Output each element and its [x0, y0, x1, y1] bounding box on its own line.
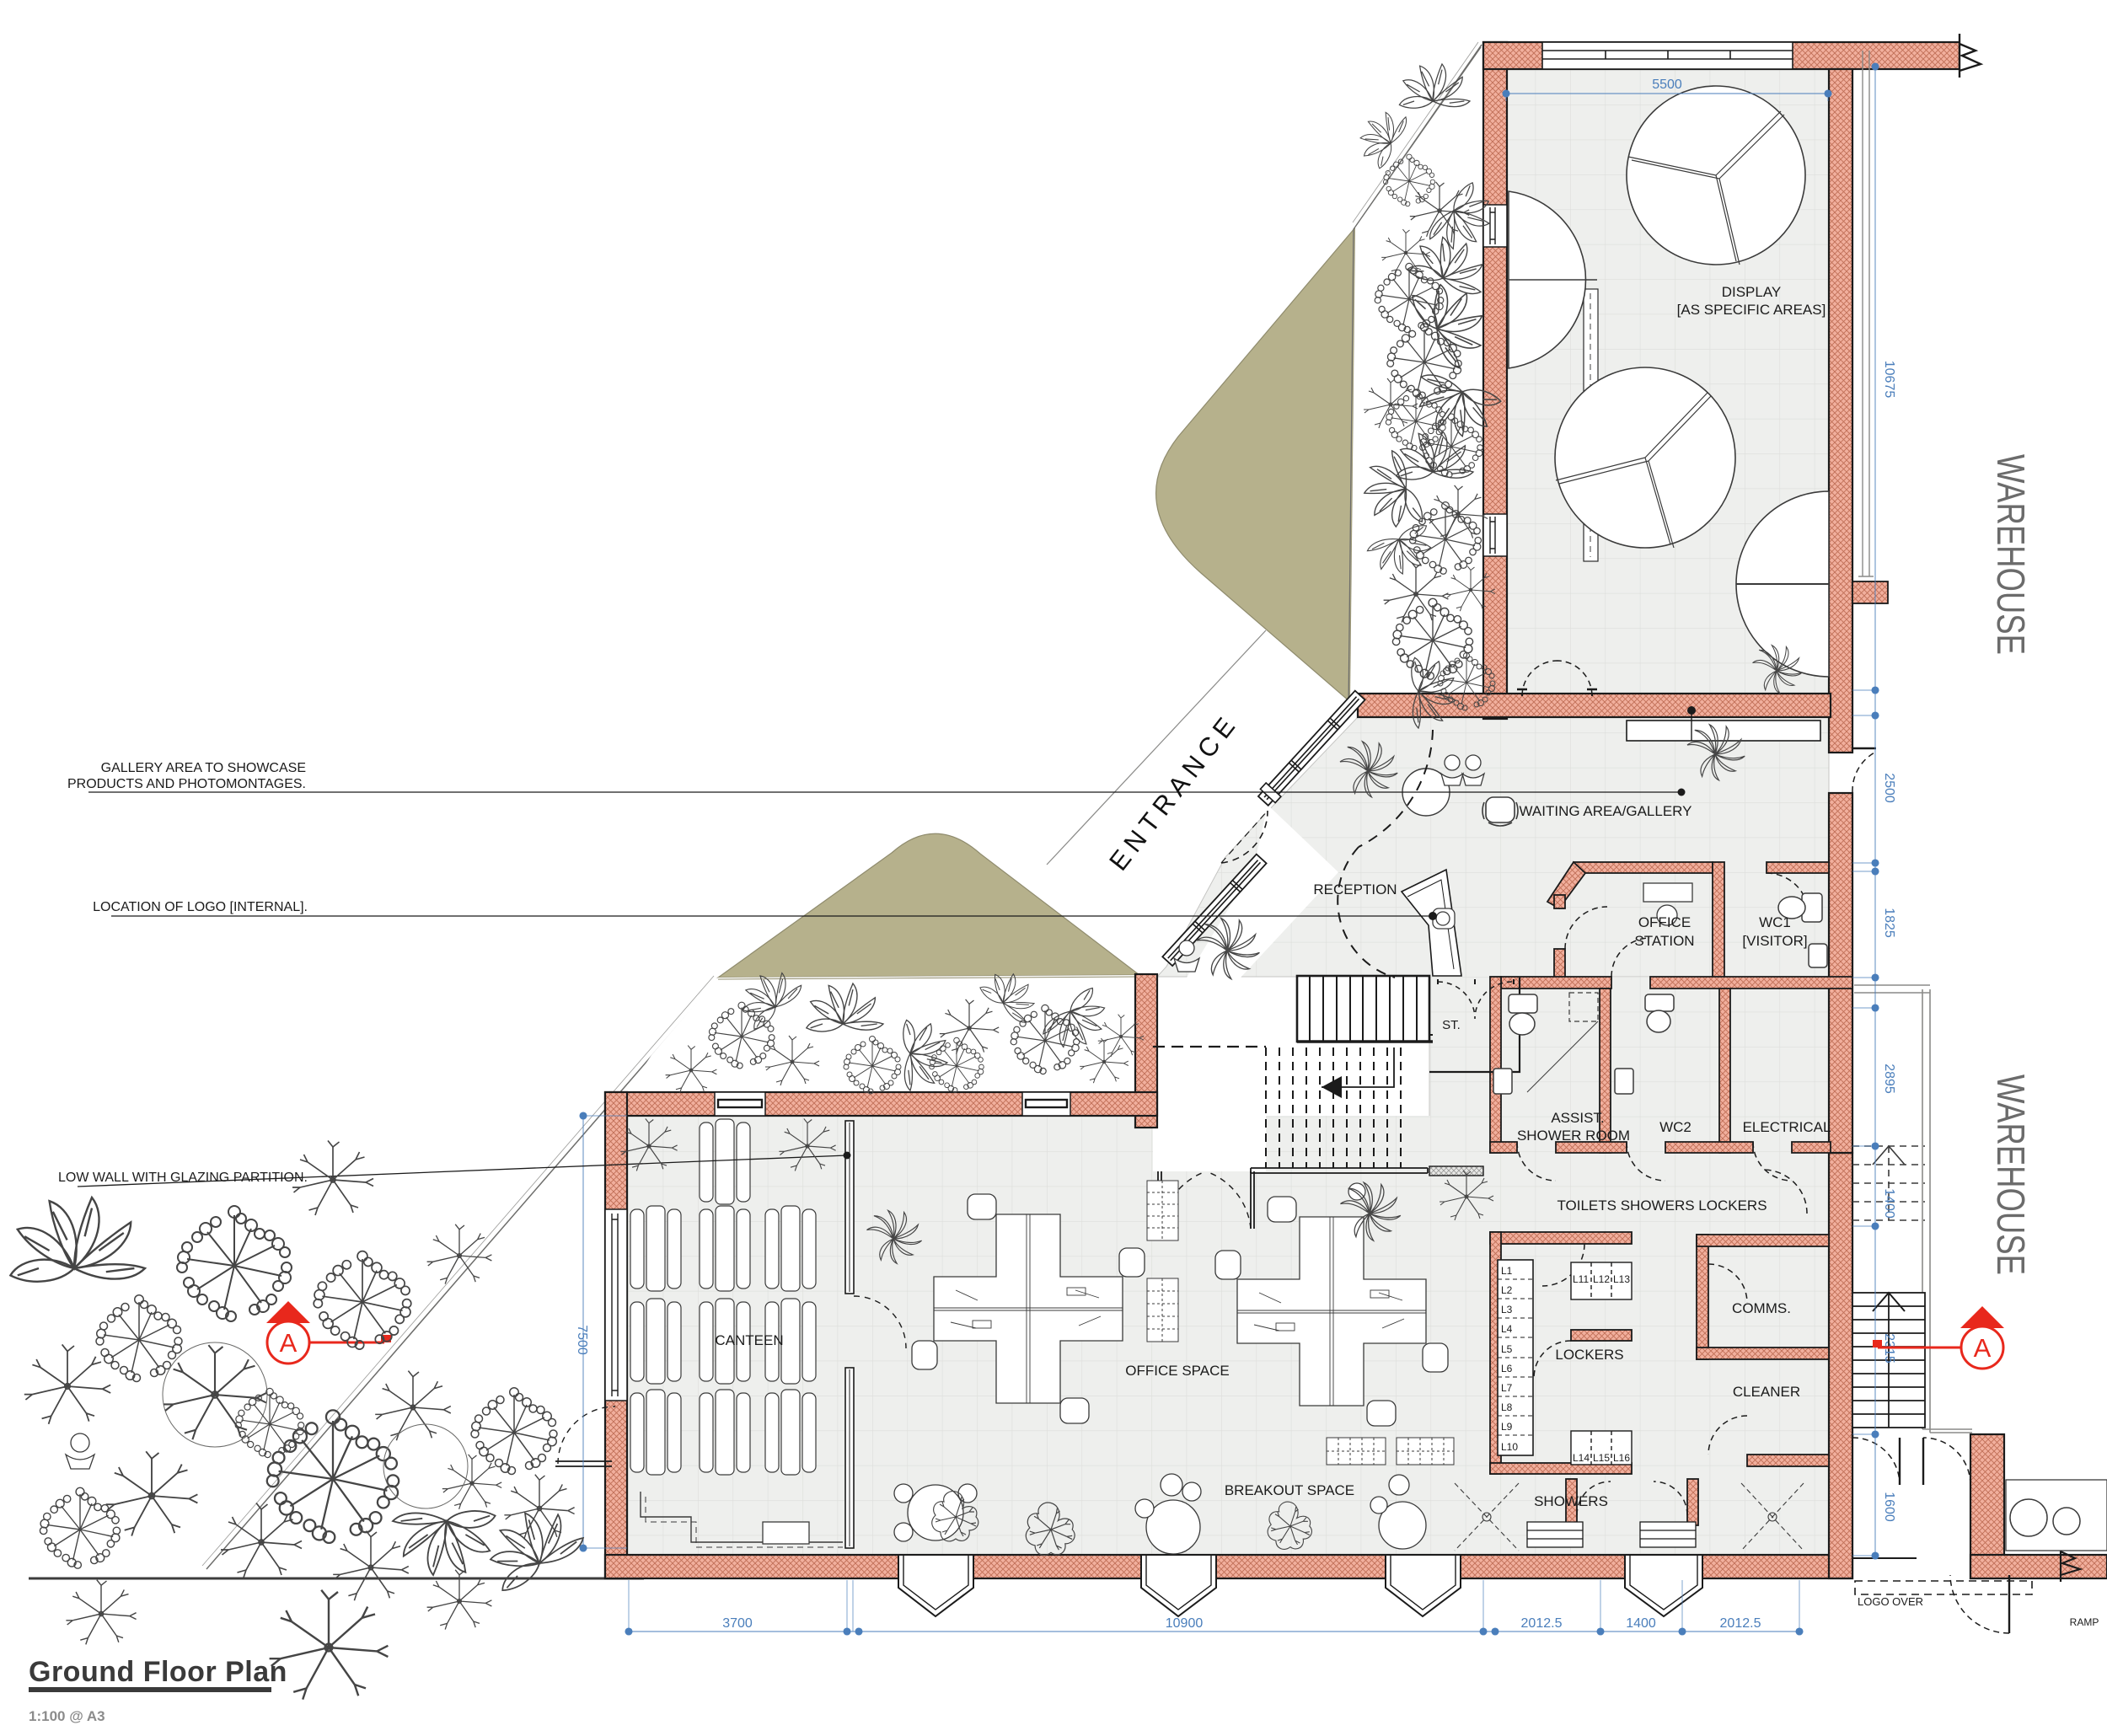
svg-text:WAITING AREA/GALLERY: WAITING AREA/GALLERY — [1519, 803, 1691, 819]
svg-text:CANTEEN: CANTEEN — [715, 1332, 783, 1348]
svg-text:Ground Floor Plan: Ground Floor Plan — [29, 1656, 287, 1688]
svg-text:SHOWER ROOM: SHOWER ROOM — [1517, 1128, 1630, 1144]
svg-text:SHOWERS: SHOWERS — [1534, 1493, 1608, 1509]
svg-text:A: A — [1974, 1333, 1992, 1363]
svg-text:WC2: WC2 — [1659, 1119, 1691, 1135]
svg-text:L16: L16 — [1613, 1452, 1630, 1464]
svg-text:L15: L15 — [1593, 1452, 1610, 1464]
svg-text:1600: 1600 — [1882, 1492, 1896, 1522]
svg-text:3700: 3700 — [722, 1616, 753, 1631]
svg-text:L11: L11 — [1573, 1273, 1589, 1285]
svg-text:A: A — [280, 1328, 298, 1358]
svg-text:L12: L12 — [1593, 1273, 1610, 1285]
svg-text:RECEPTION: RECEPTION — [1313, 881, 1397, 897]
svg-text:L9: L9 — [1501, 1421, 1513, 1433]
svg-text:DISPLAY: DISPLAY — [1722, 284, 1782, 300]
svg-text:PRODUCTS AND PHOTOMONTAGES.: PRODUCTS AND PHOTOMONTAGES. — [67, 777, 306, 791]
svg-text:L2: L2 — [1501, 1284, 1513, 1296]
svg-text:L5: L5 — [1501, 1343, 1513, 1355]
svg-text:L3: L3 — [1501, 1304, 1513, 1315]
svg-text:GALLERY AREA TO SHOWCASE: GALLERY AREA TO SHOWCASE — [101, 761, 306, 775]
svg-text:ST.: ST. — [1442, 1018, 1461, 1032]
svg-text:RAMP: RAMP — [2070, 1616, 2099, 1628]
svg-text:STATION: STATION — [1634, 933, 1694, 949]
svg-text:[AS SPECIFIC AREAS]: [AS SPECIFIC AREAS] — [1677, 302, 1826, 318]
svg-text:L6: L6 — [1501, 1363, 1513, 1374]
svg-text:WAREHOUSE: WAREHOUSE — [1989, 1074, 2033, 1275]
svg-text:L8: L8 — [1501, 1401, 1513, 1413]
svg-text:L13: L13 — [1613, 1273, 1630, 1285]
svg-text:2012.5: 2012.5 — [1720, 1616, 1761, 1631]
svg-text:1400: 1400 — [1882, 1188, 1896, 1219]
svg-text:TOILETS SHOWERS LOCKERS: TOILETS SHOWERS LOCKERS — [1557, 1198, 1767, 1214]
svg-text:[VISITOR]: [VISITOR] — [1742, 933, 1807, 949]
svg-text:10900: 10900 — [1166, 1616, 1204, 1631]
svg-text:1825: 1825 — [1882, 908, 1896, 938]
svg-text:LOCKERS: LOCKERS — [1555, 1347, 1623, 1363]
svg-text:WC1: WC1 — [1759, 914, 1791, 930]
svg-text:2895: 2895 — [1882, 1064, 1896, 1094]
svg-text:L4: L4 — [1501, 1323, 1513, 1335]
svg-text:ASSIST.: ASSIST. — [1551, 1110, 1604, 1126]
svg-text:L1: L1 — [1501, 1265, 1513, 1277]
svg-text:ELECTRICAL: ELECTRICAL — [1743, 1119, 1831, 1135]
svg-text:BREAKOUT SPACE: BREAKOUT SPACE — [1225, 1482, 1354, 1498]
svg-text:LOW WALL WITH GLAZING PARTITIO: LOW WALL WITH GLAZING PARTITION. — [58, 1171, 308, 1185]
svg-text:L10: L10 — [1501, 1441, 1518, 1453]
svg-text:OFFICE SPACE: OFFICE SPACE — [1125, 1363, 1229, 1379]
svg-text:2012.5: 2012.5 — [1521, 1616, 1563, 1631]
svg-text:OFFICE: OFFICE — [1638, 914, 1691, 930]
svg-text:10675: 10675 — [1882, 361, 1896, 399]
svg-text:L7: L7 — [1501, 1382, 1513, 1394]
svg-text:L14: L14 — [1573, 1452, 1590, 1464]
svg-text:1400: 1400 — [1626, 1616, 1656, 1631]
svg-text:1:100 @ A3: 1:100 @ A3 — [29, 1708, 105, 1724]
svg-text:WAREHOUSE: WAREHOUSE — [1989, 454, 2033, 655]
svg-text:CLEANER: CLEANER — [1733, 1384, 1800, 1400]
svg-text:LOCATION OF LOGO [INTERNAL].: LOCATION OF LOGO [INTERNAL]. — [93, 900, 308, 914]
svg-text:2500: 2500 — [1882, 773, 1896, 803]
svg-text:COMMS.: COMMS. — [1732, 1300, 1791, 1316]
svg-text:5500: 5500 — [1652, 78, 1682, 92]
svg-text:LOGO OVER: LOGO OVER — [1858, 1595, 1923, 1608]
svg-text:7500: 7500 — [575, 1325, 589, 1355]
